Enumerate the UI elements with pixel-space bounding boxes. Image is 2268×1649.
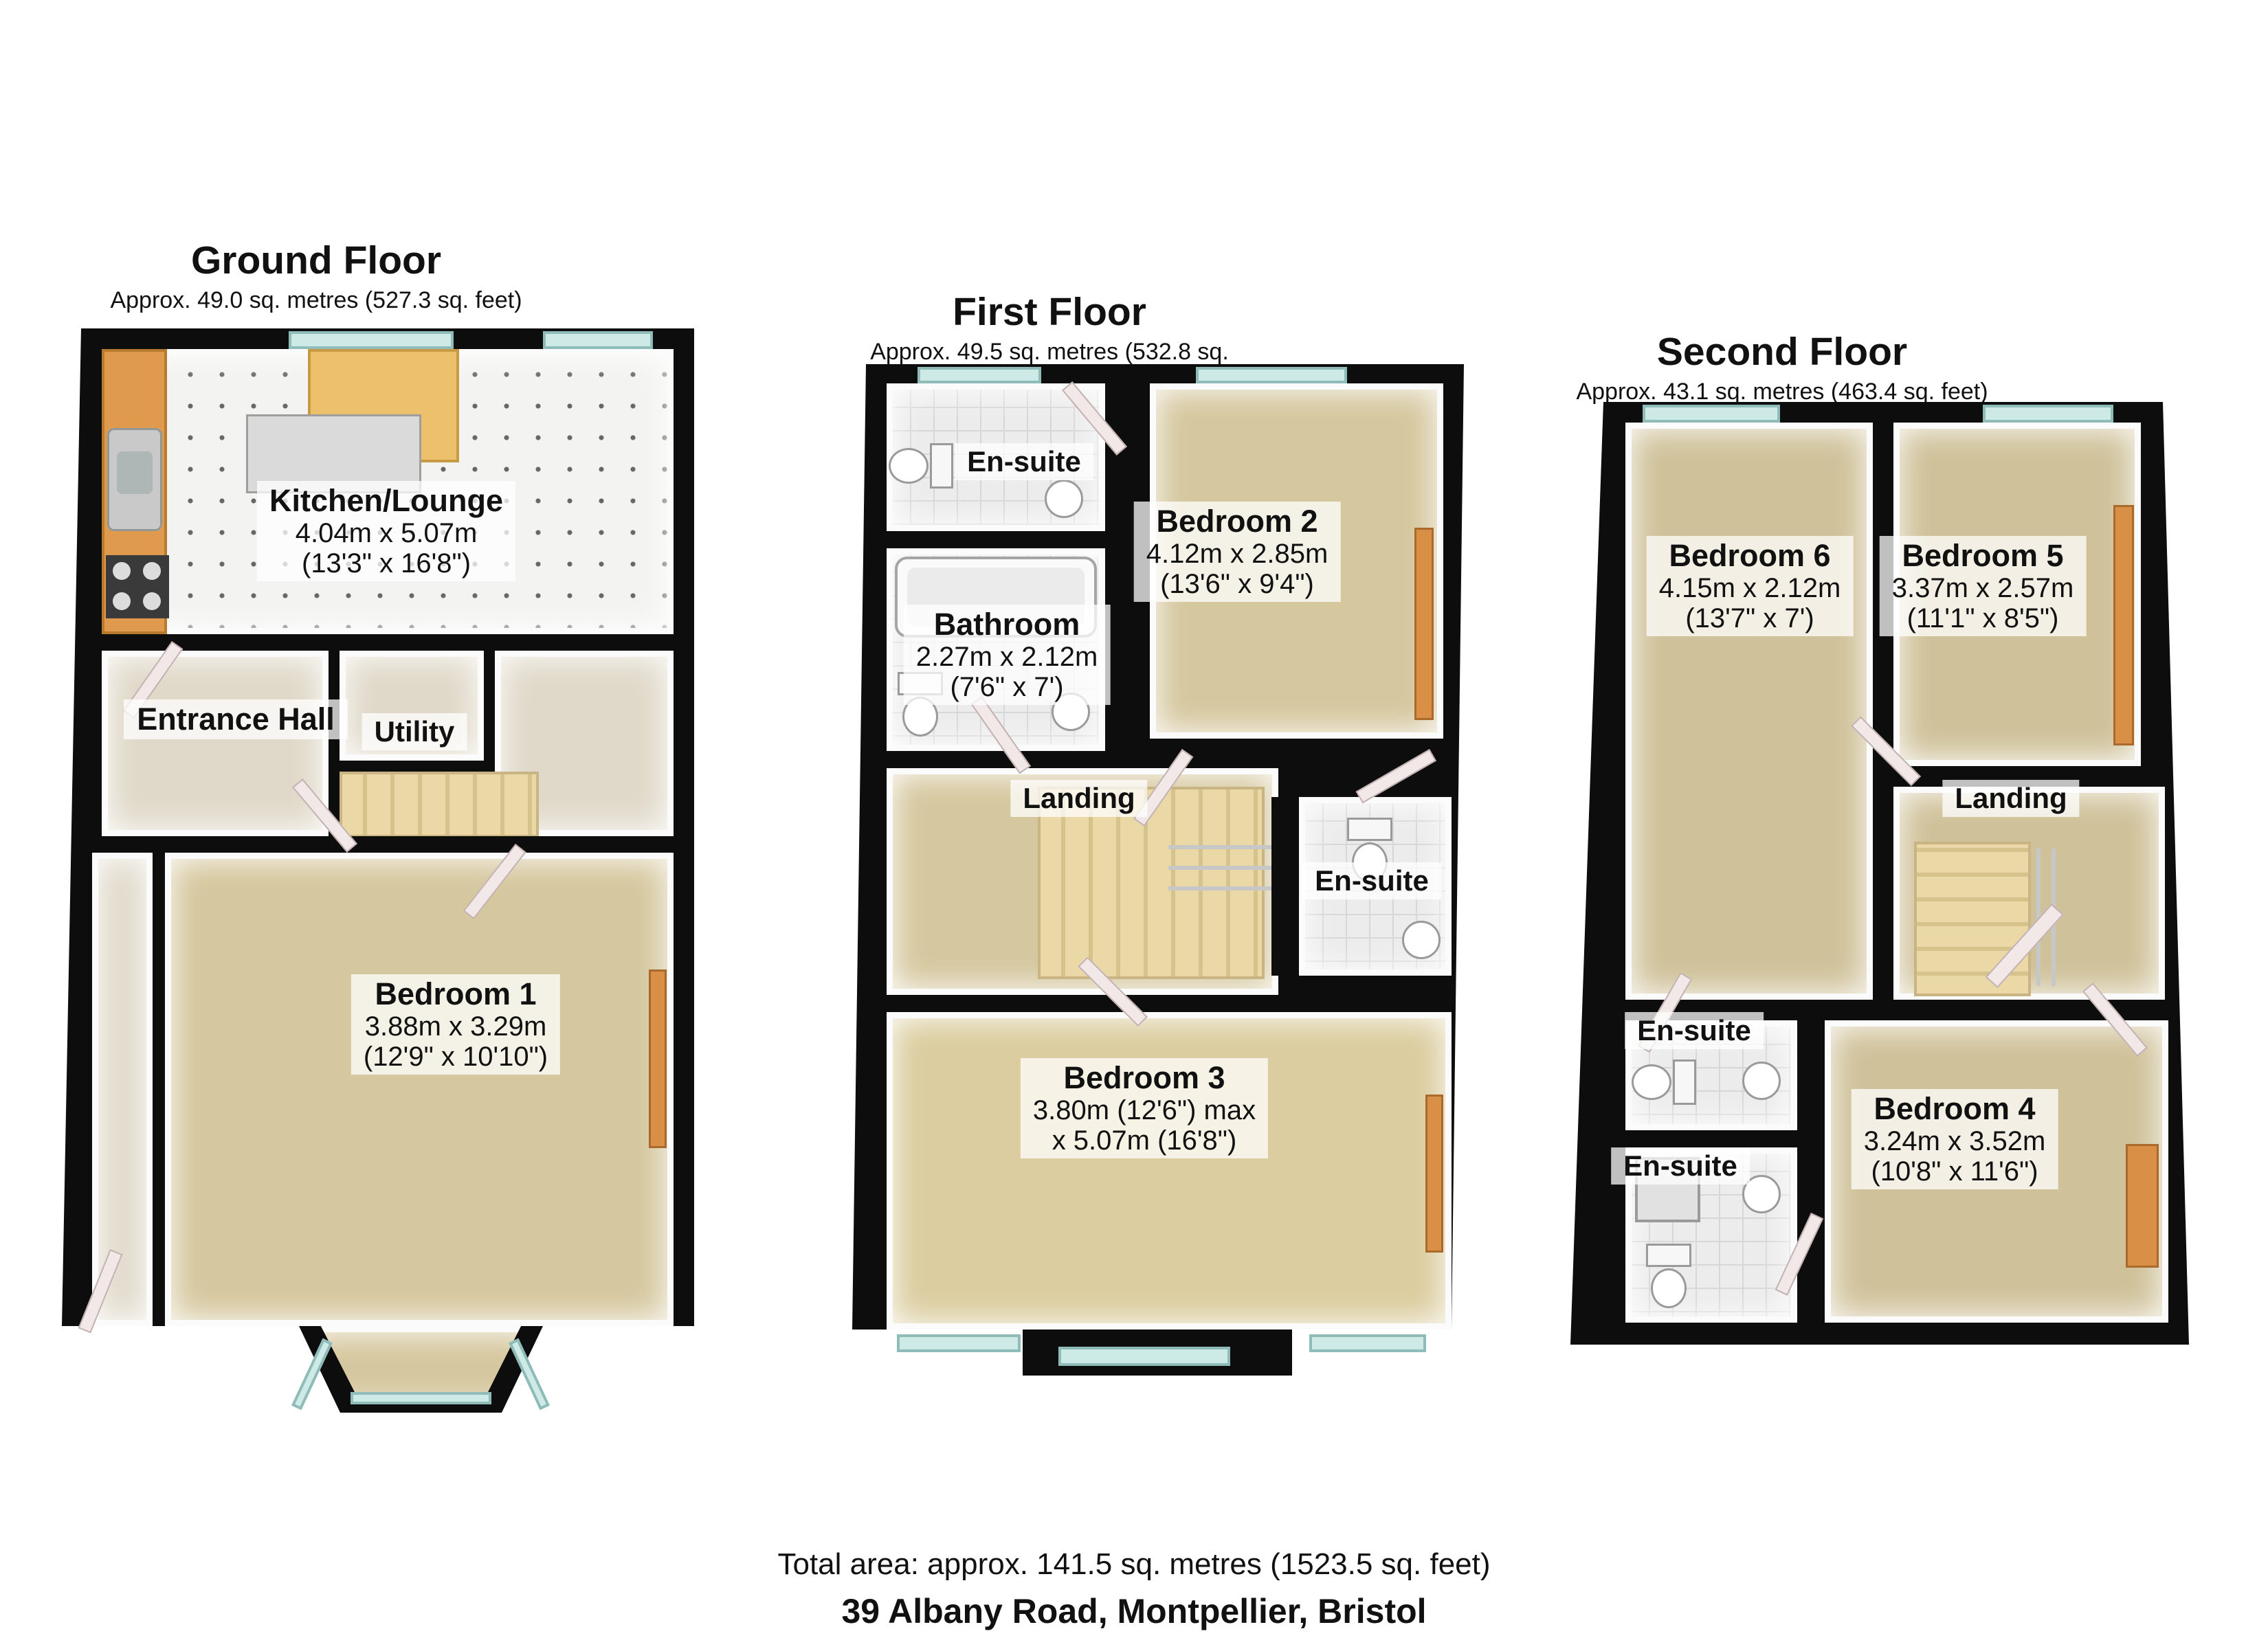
room-label-bedroom-4: Bedroom 4 3.24m x 3.52m (10'8" x 11'6") — [1852, 1089, 2058, 1189]
sink-icon — [1742, 1062, 1781, 1100]
room-label-bedroom-6: Bedroom 6 4.15m x 2.12m (13'7" x 7') — [1647, 536, 1854, 636]
room-label-ensuite-1: En-suite — [955, 443, 1093, 480]
room-label-bedroom-1: Bedroom 1 3.88m x 3.29m (12'9" x 10'10") — [351, 974, 560, 1075]
window-glass — [289, 331, 454, 349]
room-label-landing-2: Landing — [1942, 780, 2079, 817]
wall-segment — [887, 531, 1105, 548]
room-label-landing-1: Landing — [1010, 780, 1147, 817]
window-glass — [1309, 1334, 1426, 1352]
wardrobe — [2113, 505, 2134, 745]
room-label-ensuite-4: En-suite — [1611, 1147, 1750, 1185]
first-floor-plan: En-suite Bedroom 2 4.12m x 2.85m (13'6" … — [852, 364, 1464, 1426]
window-glass — [1643, 405, 1780, 423]
ground-floor-title: Ground Floor — [62, 240, 570, 282]
room-label-entrance-hall: Entrance Hall — [124, 699, 348, 739]
toilet-icon — [1627, 1059, 1696, 1105]
wall-segment — [887, 995, 1278, 1012]
wall-segment — [82, 836, 675, 853]
wardrobe — [1414, 528, 1434, 720]
window-glass — [543, 331, 653, 349]
second-floor-subtitle: Approx. 43.1 sq. metres (463.4 sq. feet) — [1570, 379, 1994, 405]
room-label-ensuite-3: En-suite — [1625, 1012, 1764, 1049]
ground-floor-header: Ground Floor Approx. 49.0 sq. metres (52… — [62, 240, 570, 314]
ground-floor-plan: Kitchen/Lounge 4.04m x 5.07m (13'3" x 16… — [62, 328, 694, 1496]
sink-icon — [1402, 921, 1441, 959]
wall-segment — [153, 853, 165, 1326]
wardrobe — [1425, 1095, 1443, 1253]
wall-segment — [1797, 1020, 1825, 1323]
second-floor-plan: Bedroom 6 4.15m x 2.12m (13'7" x 7') Bed… — [1570, 402, 2196, 1419]
banister-rail — [1168, 886, 1271, 890]
toilet-icon — [1646, 1244, 1691, 1312]
toilet-icon — [885, 443, 953, 489]
second-floor-title: Second Floor — [1570, 332, 1994, 373]
sink-icon — [1045, 480, 1083, 518]
floorplan-page: Ground Floor Approx. 49.0 sq. metres (52… — [0, 0, 2268, 1649]
ground-floor-subtitle: Approx. 49.0 sq. metres (527.3 sq. feet) — [62, 287, 570, 314]
wall-segment — [340, 761, 484, 772]
wall-segment — [1625, 1130, 1797, 1147]
sink-basin — [117, 451, 153, 494]
room-label-bedroom-3: Bedroom 3 3.80m (12'6") max x 5.07m (16'… — [1021, 1058, 1268, 1158]
total-area-text: Total area: approx. 141.5 sq. metres (15… — [0, 1547, 2268, 1582]
wall-segment — [1150, 739, 1443, 756]
banister-rail — [1168, 866, 1271, 870]
room-entrance-hall — [102, 651, 329, 836]
footer: Total area: approx. 141.5 sq. metres (15… — [0, 1547, 2268, 1631]
wall-segment — [887, 751, 1105, 768]
wall-segment — [1271, 797, 1299, 976]
address-text: 39 Albany Road, Montpellier, Bristol — [0, 1591, 2268, 1631]
window-glass — [1058, 1347, 1230, 1366]
first-floor-title: First Floor — [852, 292, 1247, 333]
wardrobe — [649, 969, 667, 1148]
dresser — [2126, 1144, 2159, 1268]
window-glass — [918, 367, 1041, 383]
room-label-utility: Utility — [362, 713, 467, 750]
staircase — [340, 772, 539, 838]
stove-icon — [106, 555, 169, 618]
wall-segment — [1873, 423, 1893, 1000]
staircase — [1914, 842, 2031, 996]
second-floor-header: Second Floor Approx. 43.1 sq. metres (46… — [1570, 332, 1994, 405]
window-glass — [1196, 367, 1347, 383]
room-label-bathroom: Bathroom 2.27m x 2.12m (7'6" x 7') — [904, 605, 1111, 705]
sink-icon — [107, 428, 162, 531]
banister-rail — [1168, 845, 1271, 849]
room-label-ensuite-2: En-suite — [1302, 862, 1441, 899]
bay-window-glass — [351, 1392, 491, 1404]
window-glass — [1983, 405, 2113, 423]
room-bedroom-6 — [1625, 423, 1873, 1000]
room-label-kitchen: Kitchen/Lounge 4.04m x 5.07m (13'3" x 16… — [257, 481, 515, 581]
window-glass — [897, 1334, 1021, 1352]
room-label-bedroom-5: Bedroom 5 3.37m x 2.57m (11'1" x 8'5") — [1880, 536, 2087, 636]
room-bedroom-1 — [165, 853, 674, 1326]
room-label-bedroom-2: Bedroom 2 4.12m x 2.85m (13'6" x 9'4") — [1134, 502, 1341, 602]
wall-segment — [329, 651, 340, 836]
